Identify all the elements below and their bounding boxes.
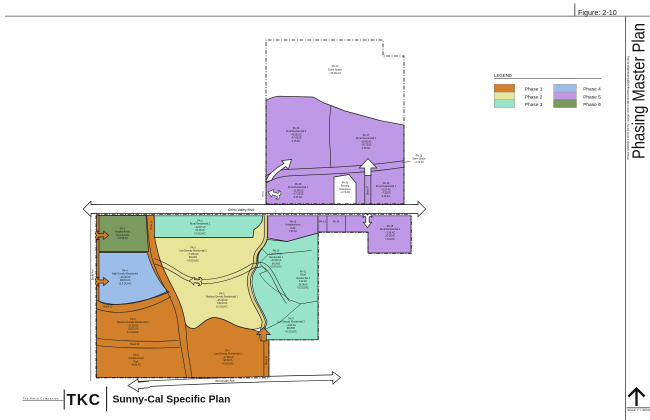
svg-text:Brookside Ave: Brookside Ave bbox=[215, 379, 235, 384]
svg-text:TKC: TKC bbox=[67, 392, 101, 409]
svg-text:Euclid Ave: Euclid Ave bbox=[92, 269, 95, 280]
svg-text:Street ‘F’: Street ‘F’ bbox=[367, 185, 370, 195]
svg-text:Chino Valley Blvd: Chino Valley Blvd bbox=[228, 208, 254, 212]
svg-text:PA-14: PA-14 bbox=[333, 221, 340, 224]
svg-text:Phasing Master Plan: Phasing Master Plan bbox=[629, 23, 649, 159]
svg-text:Street: Street bbox=[261, 191, 264, 197]
svg-text:SCALE: 1" = 300' FEET N: SCALE: 1" = 300' FEET N bbox=[628, 409, 650, 412]
svg-text:PA-13: PA-13 bbox=[319, 221, 326, 224]
svg-text:Printed: 3/4/2005 9:08:15 AM: Printed: 3/4/2005 9:08:15 AM By: J.berge… bbox=[627, 55, 630, 160]
svg-text:Street ‘D’: Street ‘D’ bbox=[130, 343, 140, 346]
svg-text:Phase 1: Phase 1 bbox=[525, 87, 543, 93]
svg-text:Street ‘C’: Street ‘C’ bbox=[103, 305, 113, 308]
svg-text:The Keith Companies: The Keith Companies bbox=[23, 396, 59, 400]
svg-text:Street ‘E’: Street ‘E’ bbox=[265, 355, 268, 365]
svg-text:Phase 3: Phase 3 bbox=[525, 102, 543, 108]
svg-text:PA-10Low DensityResidential 1~: PA-10Low DensityResidential 1~10.96 AC68… bbox=[269, 250, 283, 269]
svg-text:Phase 2: Phase 2 bbox=[525, 94, 543, 100]
svg-text:Phase 6: Phase 6 bbox=[583, 102, 601, 108]
svg-text:Figure: 2-10: Figure: 2-10 bbox=[578, 8, 617, 17]
svg-text:Sunny-Cal Specific Plan: Sunny-Cal Specific Plan bbox=[113, 394, 231, 405]
svg-text:Phase 5: Phase 5 bbox=[583, 94, 601, 100]
svg-text:LEGEND: LEGEND bbox=[494, 73, 512, 78]
svg-text:Phase 4: Phase 4 bbox=[583, 87, 601, 93]
